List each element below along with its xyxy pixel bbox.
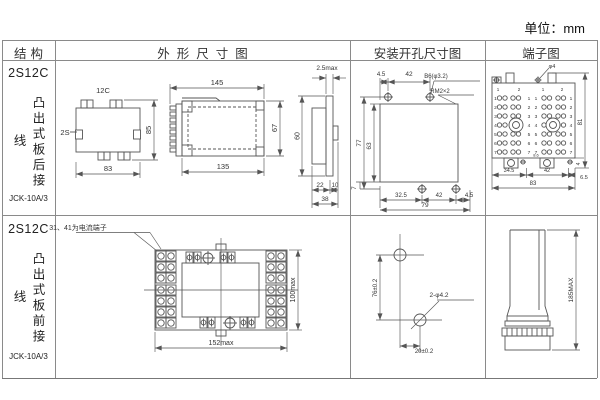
terminal-b4-dim: 83 — [530, 181, 537, 187]
terminal-row-number: 2 — [528, 105, 531, 111]
row2-wiring-wrap: 凸出式板前接线 — [2, 248, 55, 348]
side-top-dim: 145 — [211, 78, 224, 87]
table-border-bottom — [2, 378, 597, 379]
terminal-row-number: 2 — [570, 105, 573, 111]
panel-d3-dim: 38 — [321, 196, 329, 203]
install2-h-dim: 20±0.2 — [415, 349, 434, 355]
terminal-numbers: 1 2 1 2 1111 2222 3333 4444 5555 6666 77… — [494, 87, 573, 156]
side-view-drawing: 145 135 67 — [168, 60, 296, 188]
install-t2-dim: 42 — [405, 71, 413, 78]
install-b2-dim: 42 — [436, 193, 443, 199]
terminal-foot-dim: 4 — [576, 162, 582, 165]
install-b1-dim: 32.5 — [395, 193, 407, 199]
install-hole-label: B6(φ3.2) — [424, 74, 448, 80]
install-thread-label: RM2×2 — [430, 89, 450, 95]
terminal-row-number: 1 — [535, 96, 538, 102]
front-note: 31、41为电流端子 — [49, 223, 107, 232]
install-b3-dim: 4.5 — [465, 193, 474, 199]
header-structure: 结构 — [2, 43, 55, 59]
terminal-screw-label: φ4 — [549, 64, 556, 70]
panel-view-drawing: 2.5max 60 22 10 38 — [294, 60, 348, 210]
panel-d2-dim: 10 — [332, 183, 339, 189]
install2-centerlines — [376, 234, 474, 348]
rear-width-dim: 83 — [104, 164, 112, 173]
terminal-row-number: 6 — [570, 141, 573, 147]
terminal-row-number: 3 — [528, 114, 531, 120]
front-width-dim: 152max — [209, 340, 234, 347]
rear-view-body — [70, 100, 141, 160]
front-height-dim: 100max — [290, 277, 297, 302]
row1-wiring: 凸出式板后接线 — [10, 92, 48, 192]
terminal-row-number: 7 — [528, 150, 531, 156]
silhouette-dimensions — [547, 230, 580, 350]
install-b0-dim: 7 — [352, 186, 358, 190]
terminal-gap-dim: 8.6 — [533, 153, 539, 158]
terminal-top-num: 2 — [561, 87, 564, 92]
terminal-row-number: 3 — [535, 114, 538, 120]
rear-top-label: 12C — [96, 86, 110, 95]
terminal-row-number: 5 — [494, 132, 497, 138]
front-dimensions — [155, 250, 302, 352]
terminal-row-number: 5 — [528, 132, 531, 138]
terminal-row-number: 3 — [570, 114, 573, 120]
front-note-leader — [76, 233, 161, 252]
panel-top-dim: 2.5max — [316, 65, 338, 72]
terminal-b1-dim: 34.5 — [504, 168, 515, 174]
row2-type: JCK-10A/3 — [2, 352, 55, 361]
terminal-row-number: 7 — [570, 150, 573, 156]
side-height-dim: 67 — [270, 124, 279, 132]
terminal-top-num: 1 — [542, 87, 545, 92]
terminal-row-number: 1 — [528, 96, 531, 102]
terminal-b3-dim: 6.5 — [580, 175, 588, 181]
row2-model: 2S12C — [2, 222, 55, 236]
rear-view-dimensions — [76, 100, 158, 178]
side-bottom-dim: 135 — [217, 162, 230, 171]
terminal-row-number: 5 — [535, 132, 538, 138]
install-plate — [380, 92, 461, 194]
terminal-b2-dim: 42 — [544, 168, 550, 174]
rear-left-label: 2S — [60, 128, 69, 137]
row1-wiring-wrap: 凸出式板后接线 — [2, 92, 55, 192]
install-t1-dim: 4.5 — [377, 72, 386, 78]
terminal-row-number: 2 — [494, 105, 497, 111]
front-view-drawing: 31、41为电流端子 — [70, 220, 315, 360]
install-drawing-row1: 4.5 42 B6(φ3.2) RM2×2 77 63 7 32.5 42 4.… — [352, 62, 484, 214]
row2-wiring: 凸出式板前接线 — [10, 248, 48, 348]
terminal-height-dim: 81 — [578, 118, 584, 125]
terminal-row-number: 1 — [494, 96, 497, 102]
terminal-row-number: 6 — [535, 141, 538, 147]
header-outline: 外形尺寸图 — [55, 43, 350, 59]
side-silhouette-drawing: 185MAX — [492, 218, 598, 358]
terminal-row-number: 4 — [535, 123, 538, 129]
table-divider-1 — [55, 40, 56, 378]
rear-view-drawing: 12C 2S 83 85 — [58, 78, 170, 190]
header-install: 安装开孔尺寸图 — [350, 43, 485, 59]
terminal-row-number: 5 — [570, 132, 573, 138]
panel-body — [312, 96, 338, 176]
datasheet-page: 单位：mm 结构 外形尺寸图 安装开孔尺寸图 端子图 2S12C 凸出式板后接线… — [0, 0, 600, 400]
row1-type: JCK-10A/3 — [2, 194, 55, 203]
rear-height-dim: 85 — [144, 126, 153, 134]
terminal-diagram: 1 2 1 2 1111 2222 3333 4444 5555 6666 77… — [486, 60, 598, 202]
install-dimensions — [356, 78, 480, 212]
row1-model: 2S12C — [2, 66, 55, 80]
panel-height-dim: 60 — [295, 132, 302, 140]
terminal-row-number: 6 — [528, 141, 531, 147]
terminal-row-number: 7 — [494, 150, 497, 156]
header-terminal: 端子图 — [485, 43, 597, 59]
table-border-top — [2, 40, 597, 41]
silhouette-height-dim: 185MAX — [568, 277, 575, 303]
install2-hole-label: 2-φ4.2 — [429, 292, 448, 299]
install-b4-dim: 79 — [421, 202, 429, 209]
terminal-row-number: 4 — [528, 123, 531, 129]
terminal-row-number: 1 — [570, 96, 573, 102]
side-view-body — [170, 98, 264, 156]
terminal-row-number: 2 — [535, 105, 538, 111]
terminal-row-number: 6 — [494, 141, 497, 147]
terminal-row-number: 4 — [570, 123, 573, 129]
terminal-row-number: 3 — [494, 114, 497, 120]
install2-v-dim: 76±0.2 — [373, 278, 379, 297]
terminal-top-num: 2 — [518, 87, 521, 92]
table-border-rowdiv — [2, 215, 597, 216]
silhouette-body — [502, 230, 553, 350]
terminal-row-number: 4 — [494, 123, 497, 129]
install-h1-dim: 77 — [356, 139, 363, 147]
terminal-top-num: 1 — [497, 87, 500, 92]
install-drawing-row2: 76±0.2 20±0.2 2-φ4.2 — [350, 222, 485, 378]
panel-d1-dim: 22 — [316, 182, 324, 189]
install2-holes — [394, 249, 426, 326]
install-h2-dim: 63 — [366, 142, 373, 150]
unit-label: 单位：mm — [505, 18, 585, 37]
